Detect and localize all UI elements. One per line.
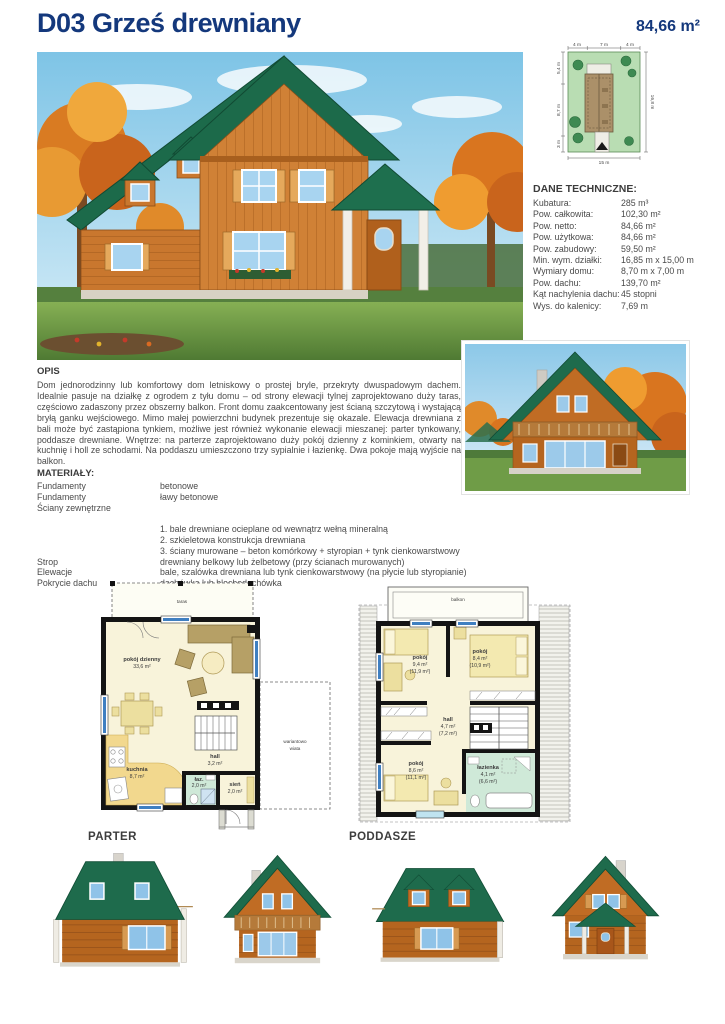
- glass-doors: [545, 441, 605, 468]
- spec-row: Pow. użytkowa:84,66 m²: [533, 232, 725, 243]
- spec-label: Pow. dachu:: [533, 278, 621, 289]
- material-label: [37, 513, 160, 524]
- material-label: [37, 546, 160, 557]
- spec-value: 7,69 m: [621, 301, 725, 312]
- toilet: [190, 794, 198, 804]
- chimney-block: [470, 723, 492, 733]
- spec-row: Wys. do kalenicy:7,69 m: [533, 301, 725, 312]
- material-row: Stropdrewniany belkowy lub żelbetowy (pr…: [37, 557, 469, 568]
- total-area-value: 84,66 m²: [636, 18, 700, 36]
- room-name-pokoj-dzienny: pokój dzienny: [123, 657, 161, 663]
- material-label: Fundamenty: [37, 492, 160, 503]
- lower-window: [223, 232, 295, 279]
- room-area2-pokoj1: (11,9 m²): [410, 669, 431, 675]
- materials-title: MATERIAŁY:: [37, 468, 469, 479]
- room-name-sien: sień: [229, 782, 241, 788]
- material-row: Fundamentyławy betonowe: [37, 492, 469, 503]
- material-label: Fundamenty: [37, 481, 160, 492]
- room-name-lazienka: łazienka: [477, 765, 500, 771]
- spec-value: 139,70 m²: [621, 278, 725, 289]
- roof-window: [90, 883, 104, 899]
- material-value: ławy betonowe: [160, 492, 469, 503]
- flower-bed: [40, 333, 184, 355]
- wing-window: [105, 244, 149, 270]
- material-label: Ściany zewnętrzne: [37, 503, 160, 514]
- material-row: [37, 513, 469, 524]
- spec-label: Pow. użytkowa:: [533, 232, 621, 243]
- spec-row: Kubatura:285 m³: [533, 198, 725, 209]
- dim-left-1: 5,4 m: [557, 62, 562, 74]
- room-area-sien: 2,0 m²: [228, 789, 243, 795]
- room-area2-lazienka: (6,6 m²): [479, 779, 497, 785]
- spec-row: Pow. netto:84,66 m²: [533, 221, 725, 232]
- room-area-pokoj-dzienny: 33,6 m²: [133, 664, 151, 670]
- room-area-lazienka: 4,1 m²: [481, 772, 496, 778]
- balcony: [513, 422, 637, 437]
- material-row: Fundamentybetonowe: [37, 481, 469, 492]
- description-section: OPIS Dom jednorodzinny lub komfortowy do…: [37, 366, 461, 467]
- plinth: [60, 962, 180, 966]
- spec-label: Wys. do kalenicy:: [533, 301, 621, 312]
- room-name-pokoj2: pokój: [473, 649, 488, 655]
- dim-right: 16,8 m: [649, 95, 655, 110]
- gable-beam: [200, 156, 368, 162]
- material-label: Strop: [37, 557, 160, 568]
- spec-value: 102,30 m²: [621, 209, 725, 220]
- room-area-hall: 3,2 m²: [208, 761, 223, 767]
- hall-closet: [247, 777, 254, 803]
- plinth: [235, 958, 320, 963]
- room-area2-pokoj3: (11,1 m²): [406, 775, 427, 781]
- carport-label-1: wariantowo: [283, 739, 307, 744]
- room-label-taras: taras: [177, 599, 188, 604]
- spec-row: Wymiary domu:8,70 m x 7,00 m: [533, 266, 725, 277]
- elevation-rear: [222, 853, 334, 971]
- material-value: 2. szkieletowa konstrukcja drewniana: [160, 535, 469, 546]
- elevation-side-right: [370, 853, 510, 971]
- balcony: [235, 915, 320, 930]
- roof-slope-right: [539, 606, 569, 821]
- dim-bottom: 15 m: [599, 160, 610, 166]
- spec-value: 45 stopni: [621, 289, 725, 300]
- window: [243, 934, 253, 951]
- elevation-side-left: [45, 853, 195, 971]
- spec-value: 59,50 m²: [621, 244, 725, 255]
- elevation-front: [550, 850, 662, 971]
- spec-label: Pow. netto:: [533, 221, 621, 232]
- spec-label: Pow. całkowita:: [533, 209, 621, 220]
- stairs: [195, 716, 237, 750]
- material-label: [37, 535, 160, 546]
- floor-plan-parter: taras wariantowo wiata: [85, 575, 345, 831]
- carport-label-2: wiata: [290, 746, 301, 751]
- upper-window: [233, 170, 285, 202]
- material-row: Ściany zewnętrzne: [37, 503, 469, 514]
- material-value: 3. ściany murowane – beton komórkowy + s…: [160, 546, 469, 557]
- site-plan: 4 m 7 m 4 m 5,4 m 8,7 m 3 m 16,8 m 15 m: [557, 42, 723, 172]
- poddasze-caption: PODDASZE: [349, 831, 416, 843]
- description-text: Dom jednorodzinny lub komfortowy dom let…: [37, 380, 461, 467]
- room-name-hall: hall: [443, 717, 453, 723]
- room-name-kuchnia: kuchnia: [126, 767, 148, 773]
- glass-doors: [258, 932, 296, 955]
- fireplace: [247, 625, 255, 633]
- parter-caption: PARTER: [88, 831, 137, 843]
- roof-window: [135, 883, 149, 899]
- washbasin: [206, 775, 215, 780]
- page-title: D03 Grześ drewniany: [37, 8, 301, 39]
- terrace-footprint: [587, 64, 611, 74]
- dim-top-2: 7 m: [600, 42, 608, 48]
- room-name-pokoj1: pokój: [413, 655, 428, 661]
- catalog-page: D03 Grześ drewniany 84,66 m²: [0, 0, 725, 1024]
- roof: [376, 869, 503, 922]
- spec-row: Pow. zabudowy:59,50 m²: [533, 244, 725, 255]
- material-value: betonowe: [160, 481, 469, 492]
- spec-value: 16,85 m x 15,00 m: [621, 255, 725, 266]
- room-area-pokoj3: 8,6 m²: [409, 768, 424, 774]
- room-area-kuchnia: 8,7 m²: [130, 774, 145, 780]
- plinth: [381, 958, 500, 962]
- spec-label: Kąt nachylenia dachu:: [533, 289, 621, 300]
- roof-slope-left: [360, 606, 377, 821]
- room-area2-pokoj2: (10,9 m²): [469, 663, 490, 669]
- coffee-table: [202, 652, 224, 674]
- material-label: [37, 524, 160, 535]
- dim-left-2: 8,7 m: [557, 104, 562, 116]
- spec-label: Wymiary domu:: [533, 266, 621, 277]
- technical-data-section: DANE TECHNICZNE: Kubatura:285 m³ Pow. ca…: [533, 183, 725, 312]
- foundation: [81, 290, 368, 299]
- room-area-pokoj1: 9,4 m²: [413, 662, 428, 668]
- spec-row: Pow. dachu:139,70 m²: [533, 278, 725, 289]
- main-house-photo: [37, 52, 523, 360]
- spec-row: Pow. całkowita:102,30 m²: [533, 209, 725, 220]
- room-area-laz: 2,0 m²: [192, 783, 207, 789]
- spec-value: 8,70 m x 7,00 m: [621, 266, 725, 277]
- fridge: [165, 788, 182, 803]
- material-value: drewniany belkowy lub żelbetowy (przy śc…: [160, 557, 469, 568]
- roof: [56, 862, 185, 920]
- spec-label: Kubatura:: [533, 198, 621, 209]
- spec-label: Min. wym. działki:: [533, 255, 621, 266]
- room-name-pokoj3: pokój: [409, 761, 424, 767]
- dim-top-1: 4 m: [573, 42, 581, 48]
- spec-row: Kąt nachylenia dachu:45 stopni: [533, 289, 725, 300]
- plinth: [509, 468, 641, 474]
- material-value: [160, 513, 469, 524]
- dim-left-3: 3 m: [557, 140, 562, 148]
- window: [263, 894, 274, 909]
- material-value: 1. bale drewniane ocieplane od wewnątrz …: [160, 524, 469, 535]
- rear-house-photo: [462, 341, 689, 494]
- stove: [109, 747, 125, 767]
- material-row: 3. ściany murowane – beton komórkowy + s…: [37, 546, 469, 557]
- plinth: [563, 954, 648, 959]
- material-row: 2. szkieletowa konstrukcja drewniana: [37, 535, 469, 546]
- spec-row: Min. wym. działki:16,85 m x 15,00 m: [533, 255, 725, 266]
- spec-value: 285 m³: [621, 198, 725, 209]
- upper-window: [290, 170, 334, 202]
- material-row: 1. bale drewniane ocieplane od wewnątrz …: [37, 524, 469, 535]
- spec-label: Pow. zabudowy:: [533, 244, 621, 255]
- entrance: [219, 810, 254, 829]
- dim-top-3: 4 m: [626, 42, 634, 48]
- balcony: balkon: [388, 587, 528, 623]
- spec-value: 84,66 m²: [621, 232, 725, 243]
- materials-section: MATERIAŁY: Fundamentybetonowe Fundamenty…: [37, 468, 469, 589]
- window: [282, 894, 293, 909]
- technical-data-title: DANE TECHNICZNE:: [533, 183, 725, 195]
- room-name-hall: hall: [210, 754, 220, 760]
- room-area-hall: 4,7 m²: [441, 724, 456, 730]
- spec-value: 84,66 m²: [621, 221, 725, 232]
- far-forest: [397, 244, 523, 294]
- room-area-pokoj2: 8,4 m²: [473, 656, 488, 662]
- sink: [108, 777, 129, 801]
- balcony-label: balkon: [451, 597, 465, 602]
- description-title: OPIS: [37, 366, 461, 377]
- material-value: [160, 503, 469, 514]
- floor-plan-poddasze: balkon: [358, 575, 620, 831]
- room-area2-hall: (7,2 m²): [439, 731, 457, 737]
- house-footprint: [585, 74, 613, 132]
